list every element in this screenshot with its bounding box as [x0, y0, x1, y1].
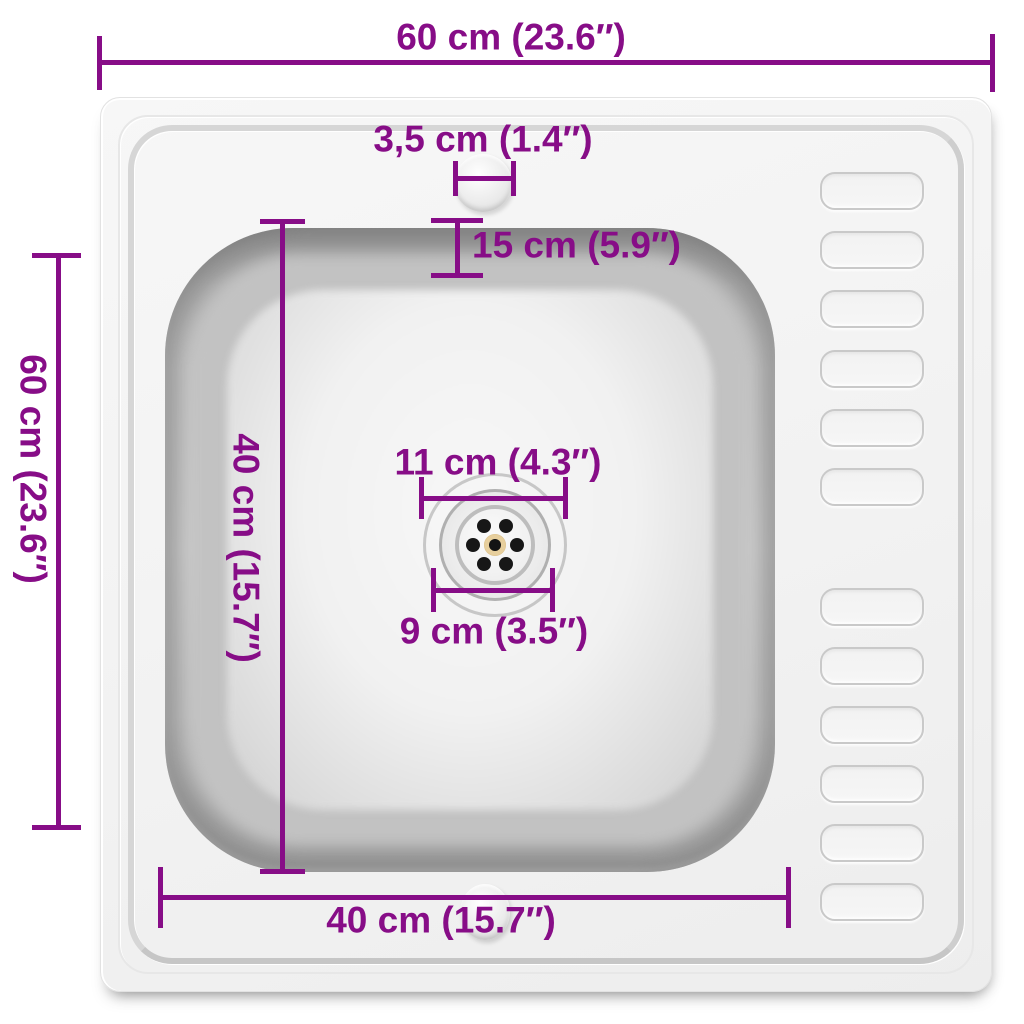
dim-overall-width-line: [99, 60, 993, 65]
dim-bowl-width-tick-right: [786, 867, 791, 928]
dim-tap-hole-tick-right: [511, 161, 516, 196]
dim-tap-offset-tick-bottom: [431, 273, 483, 278]
dim-overall-depth-tick-top: [32, 253, 81, 258]
drainboard-rib: [820, 409, 924, 447]
dim-bowl-depth-line: [280, 221, 285, 873]
drainboard-rib: [820, 172, 924, 210]
product-diagram: 60 cm (23.6″) 60 cm (23.6″) 3,5 cm (1.4″…: [0, 0, 1024, 1024]
drainboard-rib: [820, 765, 924, 803]
dim-bowl-depth-label: 40 cm (15.7″): [228, 433, 265, 663]
dim-overall-depth-tick-bottom: [32, 825, 81, 830]
drainboard-rib: [820, 706, 924, 744]
drainboard-rib: [820, 883, 924, 921]
drainboard-rib: [820, 824, 924, 862]
drainboard-rib: [820, 647, 924, 685]
dim-overall-width-tick-right: [990, 34, 995, 92]
dim-drain-tick-right: [550, 568, 555, 612]
dim-overall-depth-line: [56, 255, 61, 828]
dim-tap-hole-line: [455, 176, 513, 181]
dim-drain-tick-left: [431, 568, 436, 612]
dim-drain-flange-label: 11 cm (4.3″): [395, 444, 602, 481]
dim-drain-label: 9 cm (3.5″): [400, 613, 588, 650]
dim-overall-depth-label: 60 cm (23.6″): [15, 354, 52, 584]
dim-overall-width-label: 60 cm (23.6″): [396, 19, 626, 56]
dim-tap-offset-tick-top: [431, 218, 483, 223]
drain-strainer-plate: [455, 505, 535, 585]
drain-hole: [510, 538, 524, 552]
dim-drain-line: [433, 588, 554, 593]
tap-hole: [454, 154, 512, 212]
dim-drain-flange-tick-left: [419, 477, 424, 519]
drain-hole: [499, 519, 513, 533]
dim-drain-flange-line: [421, 496, 566, 501]
dim-drain-flange-tick-right: [563, 477, 568, 519]
dim-bowl-depth-tick-bottom: [260, 869, 305, 874]
drainboard-rib: [820, 350, 924, 388]
drain-hole: [477, 557, 491, 571]
dim-tap-offset-label: 15 cm (5.9″): [472, 227, 681, 264]
drainboard-rib: [820, 290, 924, 328]
dim-tap-hole-label: 3,5 cm (1.4″): [373, 121, 592, 158]
dim-bowl-width-label: 40 cm (15.7″): [326, 902, 556, 939]
drainboard-rib: [820, 588, 924, 626]
drain-screw-hole: [489, 539, 501, 551]
dim-tap-offset-line: [455, 220, 460, 277]
drainboard-rib: [820, 231, 924, 269]
drain-hole: [499, 557, 513, 571]
drain-hole: [477, 519, 491, 533]
drainboard-rib: [820, 468, 924, 506]
dim-overall-width-tick-left: [97, 36, 102, 90]
drain-hole: [466, 538, 480, 552]
dim-bowl-depth-tick-top: [260, 219, 305, 224]
dim-bowl-width-tick-left: [158, 867, 163, 928]
dim-tap-hole-tick-left: [453, 161, 458, 196]
